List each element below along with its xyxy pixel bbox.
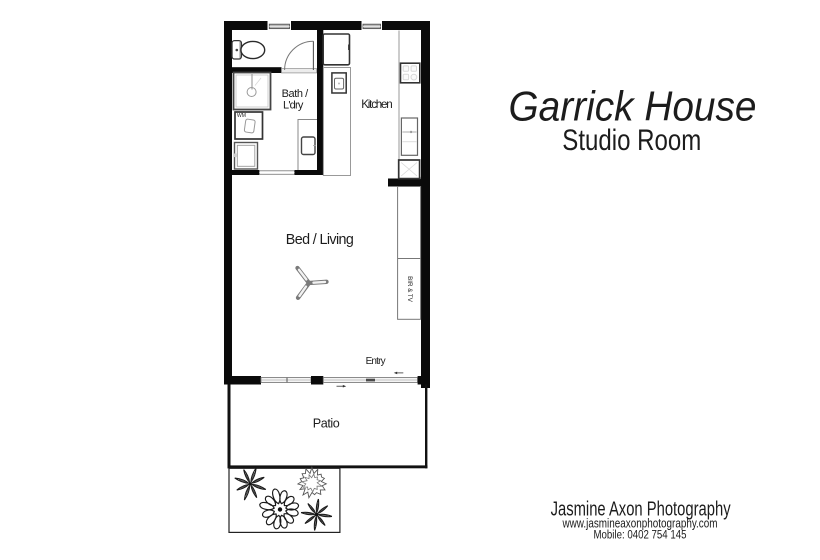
svg-text:Garrick House: Garrick House [509,83,757,130]
svg-text:BIR & TV: BIR & TV [406,276,413,303]
svg-text:Kitchen: Kitchen [361,98,393,111]
svg-text:Studio Room: Studio Room [562,124,701,157]
svg-text:www.jasmineaxonphotography.com: www.jasmineaxonphotography.com [562,516,718,530]
svg-text:Bath /: Bath / [282,88,309,100]
svg-text:WM: WM [237,113,246,119]
svg-text:Patio: Patio [313,416,340,430]
svg-text:Bed / Living: Bed / Living [286,232,354,248]
svg-text:L'dry: L'dry [283,99,304,111]
svg-text:Mobile: 0402 754 145: Mobile: 0402 754 145 [594,530,687,542]
svg-text:Entry: Entry [366,356,386,367]
